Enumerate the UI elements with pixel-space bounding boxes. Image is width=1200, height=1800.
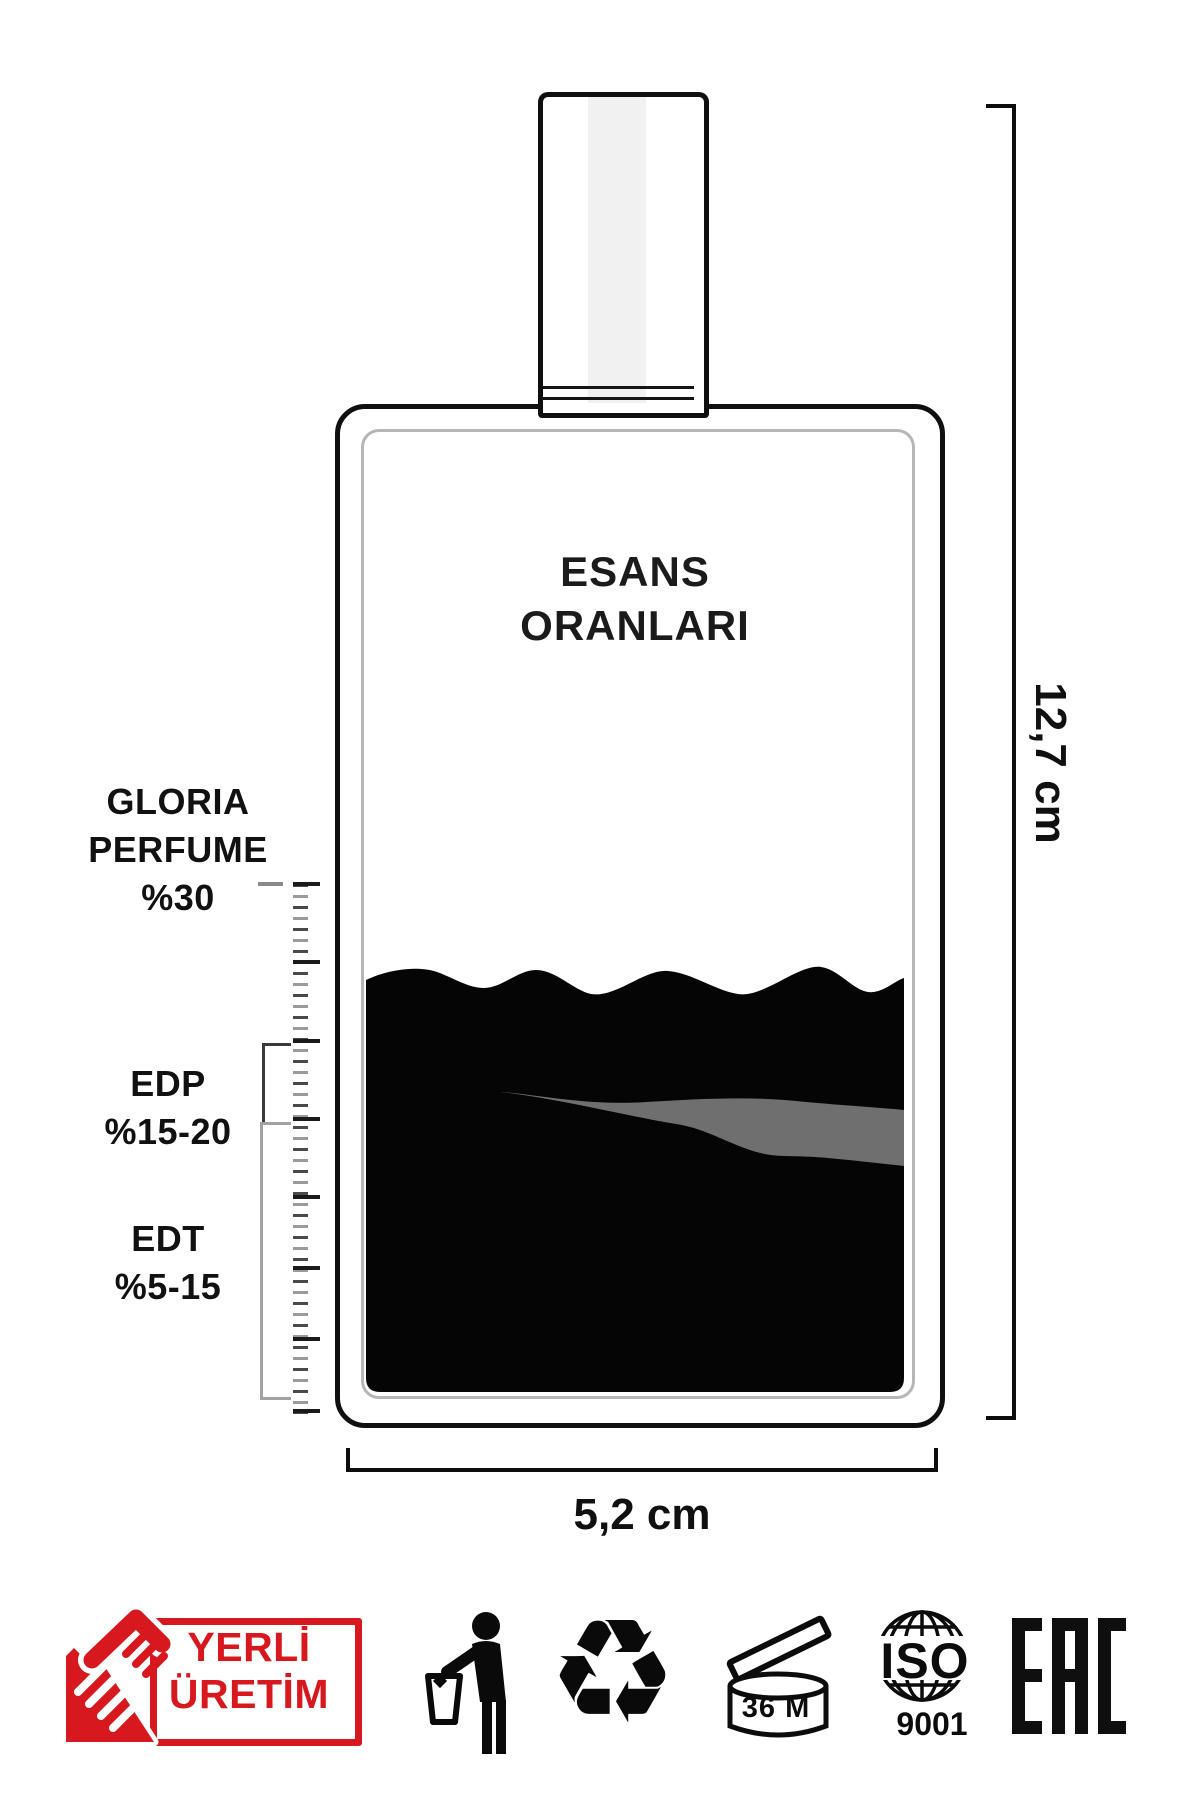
label-gloria-line1: GLORIA — [58, 778, 298, 826]
label-gloria-perfume: GLORIA PERFUME %30 — [58, 778, 298, 922]
ruler-major-tick — [293, 882, 320, 886]
width-dimension-cap-right — [934, 1448, 938, 1472]
label-edp: EDP %15-20 — [58, 1060, 278, 1156]
height-dimension-label: 12,7 cm — [1029, 663, 1075, 863]
ruler-major-tick — [293, 1039, 320, 1043]
tidy-man-icon — [420, 1610, 538, 1758]
handshake-icon — [58, 1602, 208, 1750]
ruler-major-tick — [293, 1195, 320, 1199]
percent30-tick — [258, 882, 283, 886]
label-edt-line1: EDT — [58, 1215, 278, 1263]
ruler-major-tick — [293, 1266, 320, 1270]
cap-collar-line-1 — [543, 386, 694, 389]
recycle-icon: ♻ — [535, 1593, 690, 1753]
ruler-major-tick — [293, 1117, 320, 1121]
cap-collar-line-2 — [543, 397, 694, 400]
label-gloria-line2: PERFUME — [58, 826, 298, 874]
ruler-major-tick — [293, 1409, 320, 1413]
width-dimension-label: 5,2 cm — [542, 1490, 742, 1540]
ruler-major-tick — [293, 960, 320, 964]
label-edp-line2: %15-20 — [58, 1108, 278, 1156]
ruler-major-tick — [293, 1337, 320, 1341]
eac-icon — [1012, 1618, 1126, 1734]
liquid-fill — [366, 938, 904, 1392]
label-edt-line2: %5-15 — [58, 1263, 278, 1311]
pao-36m-icon — [712, 1602, 842, 1748]
bottle-title-line1: ESANS — [385, 545, 885, 599]
edp-bracket — [262, 1043, 291, 1125]
bottle-title: ESANS ORANLARI — [385, 545, 885, 653]
height-dimension-cap-bottom — [986, 1416, 1016, 1420]
bottle-title-line2: ORANLARI — [385, 599, 885, 653]
edt-bracket — [260, 1122, 291, 1400]
infographic-canvas: ESANS ORANLARI GLORIA PERFUME %30 EDP %1… — [0, 0, 1200, 1800]
height-dimension-line — [1012, 104, 1016, 1420]
width-dimension-cap-left — [346, 1448, 350, 1472]
label-edp-line1: EDP — [58, 1060, 278, 1108]
width-dimension-line — [346, 1468, 938, 1472]
iso-label: ISO — [850, 1632, 1000, 1690]
pao-label: 36 M — [718, 1692, 834, 1725]
iso-number: 9001 — [872, 1706, 992, 1743]
label-edt: EDT %5-15 — [58, 1215, 278, 1311]
cap-highlight — [588, 97, 646, 403]
liquid-wave-shape — [366, 967, 904, 1392]
height-dimension-cap-top — [986, 104, 1016, 108]
